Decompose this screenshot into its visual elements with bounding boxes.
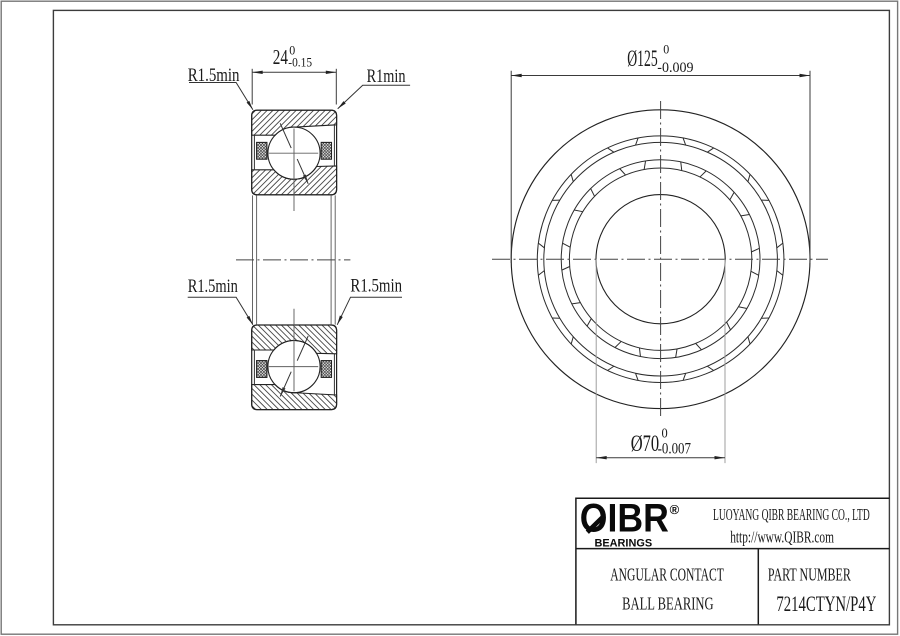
svg-text:R1.5min: R1.5min bbox=[188, 276, 239, 297]
svg-text:R1.5min: R1.5min bbox=[350, 276, 402, 297]
svg-text:7214CTYN/P4Y: 7214CTYN/P4Y bbox=[776, 591, 876, 616]
svg-text:BEARINGS: BEARINGS bbox=[595, 537, 653, 549]
svg-text:-0.009: -0.009 bbox=[657, 60, 693, 76]
svg-text:®: ® bbox=[670, 502, 680, 517]
svg-text:PART NUMBER: PART NUMBER bbox=[768, 565, 851, 585]
svg-text:0: 0 bbox=[663, 42, 669, 56]
svg-text:ANGULAR CONTACT: ANGULAR CONTACT bbox=[610, 565, 724, 585]
svg-text:LUOYANG QIBR BEARING CO., LTD: LUOYANG QIBR BEARING CO., LTD bbox=[713, 505, 870, 524]
svg-text:0: 0 bbox=[662, 425, 668, 440]
svg-text:OIBR: OIBR bbox=[580, 497, 669, 541]
svg-text:24: 24 bbox=[273, 45, 289, 69]
svg-text:-0.007: -0.007 bbox=[658, 441, 692, 458]
svg-text:BALL BEARING: BALL BEARING bbox=[622, 593, 714, 613]
svg-text:-0.15: -0.15 bbox=[288, 56, 312, 70]
svg-text:http://www.QIBR.com: http://www.QIBR.com bbox=[730, 527, 834, 546]
svg-text:Ø125: Ø125 bbox=[627, 46, 657, 71]
svg-text:R1min: R1min bbox=[367, 66, 406, 87]
svg-text:Ø70: Ø70 bbox=[631, 431, 659, 456]
